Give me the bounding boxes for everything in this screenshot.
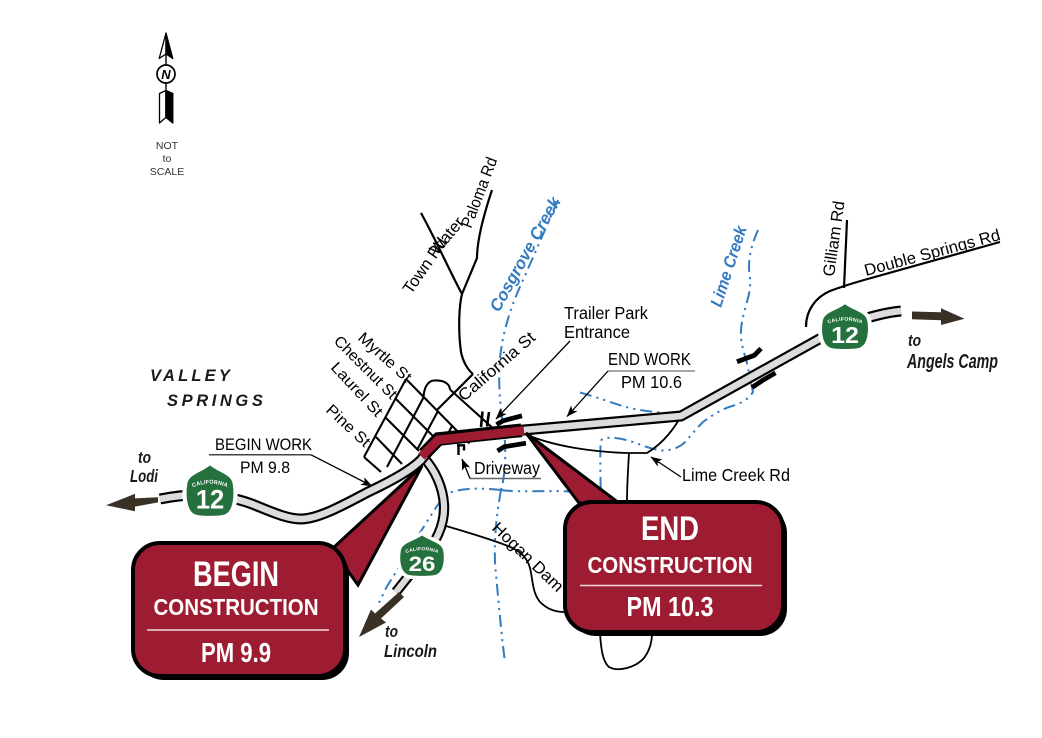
svg-text:Trailer Park: Trailer Park [564, 303, 648, 323]
svg-text:to: to [163, 153, 172, 165]
svg-text:Entrance: Entrance [564, 322, 630, 342]
svg-text:12: 12 [831, 323, 859, 349]
svg-text:N: N [161, 67, 171, 82]
svg-text:to: to [138, 448, 151, 467]
svg-text:to: to [385, 622, 398, 641]
svg-text:12: 12 [196, 484, 224, 515]
svg-text:PM 10.3: PM 10.3 [627, 591, 714, 622]
svg-text:END WORK: END WORK [608, 349, 691, 369]
svg-text:Lodi: Lodi [130, 466, 159, 486]
svg-text:to: to [908, 331, 921, 350]
svg-text:SPRINGS: SPRINGS [167, 392, 266, 410]
svg-text:CONSTRUCTION: CONSTRUCTION [588, 552, 753, 578]
svg-text:VALLEY: VALLEY [150, 367, 233, 385]
svg-text:PM 10.6: PM 10.6 [621, 372, 682, 392]
svg-text:SCALE: SCALE [150, 166, 184, 178]
svg-text:NOT: NOT [156, 140, 179, 152]
svg-text:Lime Creek Rd: Lime Creek Rd [682, 465, 790, 485]
svg-text:BEGIN: BEGIN [193, 555, 279, 594]
svg-text:26: 26 [409, 551, 436, 575]
svg-text:Lincoln: Lincoln [384, 641, 437, 661]
svg-text:Angels Camp: Angels Camp [906, 350, 998, 373]
svg-text:CONSTRUCTION: CONSTRUCTION [154, 594, 319, 620]
svg-text:PM 9.8: PM 9.8 [240, 459, 290, 477]
svg-text:Driveway: Driveway [474, 458, 540, 478]
svg-text:PM 9.9: PM 9.9 [201, 637, 271, 668]
svg-text:END: END [641, 510, 699, 548]
svg-text:BEGIN WORK: BEGIN WORK [215, 435, 313, 454]
